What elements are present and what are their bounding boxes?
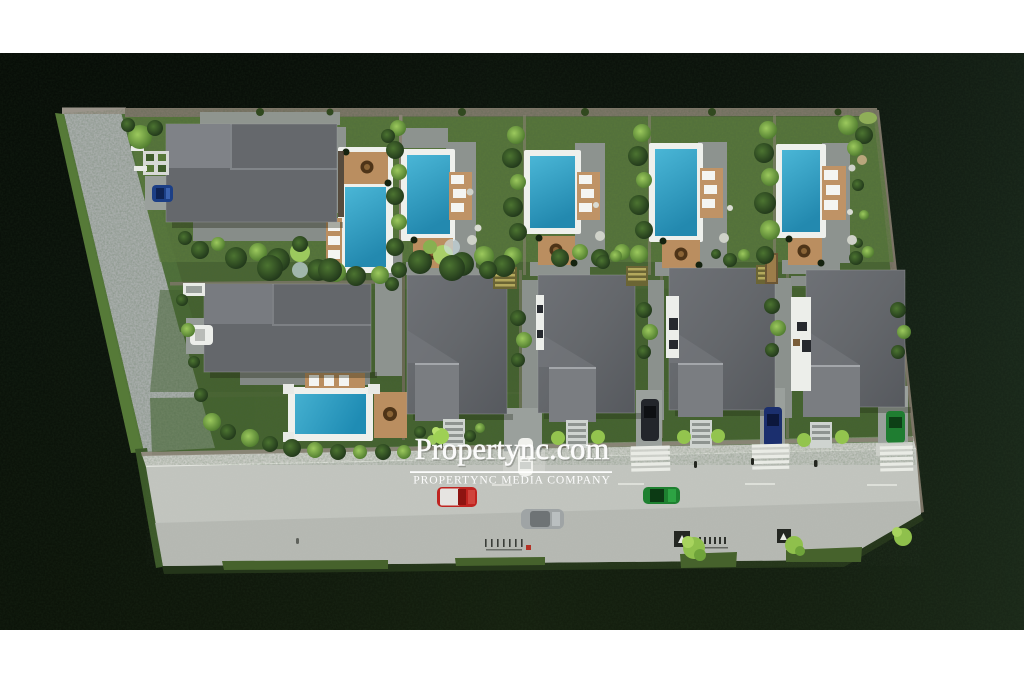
svg-text:Propertync.com: Propertync.com	[415, 432, 610, 466]
svg-text:PROPERTYNC MEDIA COMPANY: PROPERTYNC MEDIA COMPANY	[413, 474, 611, 487]
